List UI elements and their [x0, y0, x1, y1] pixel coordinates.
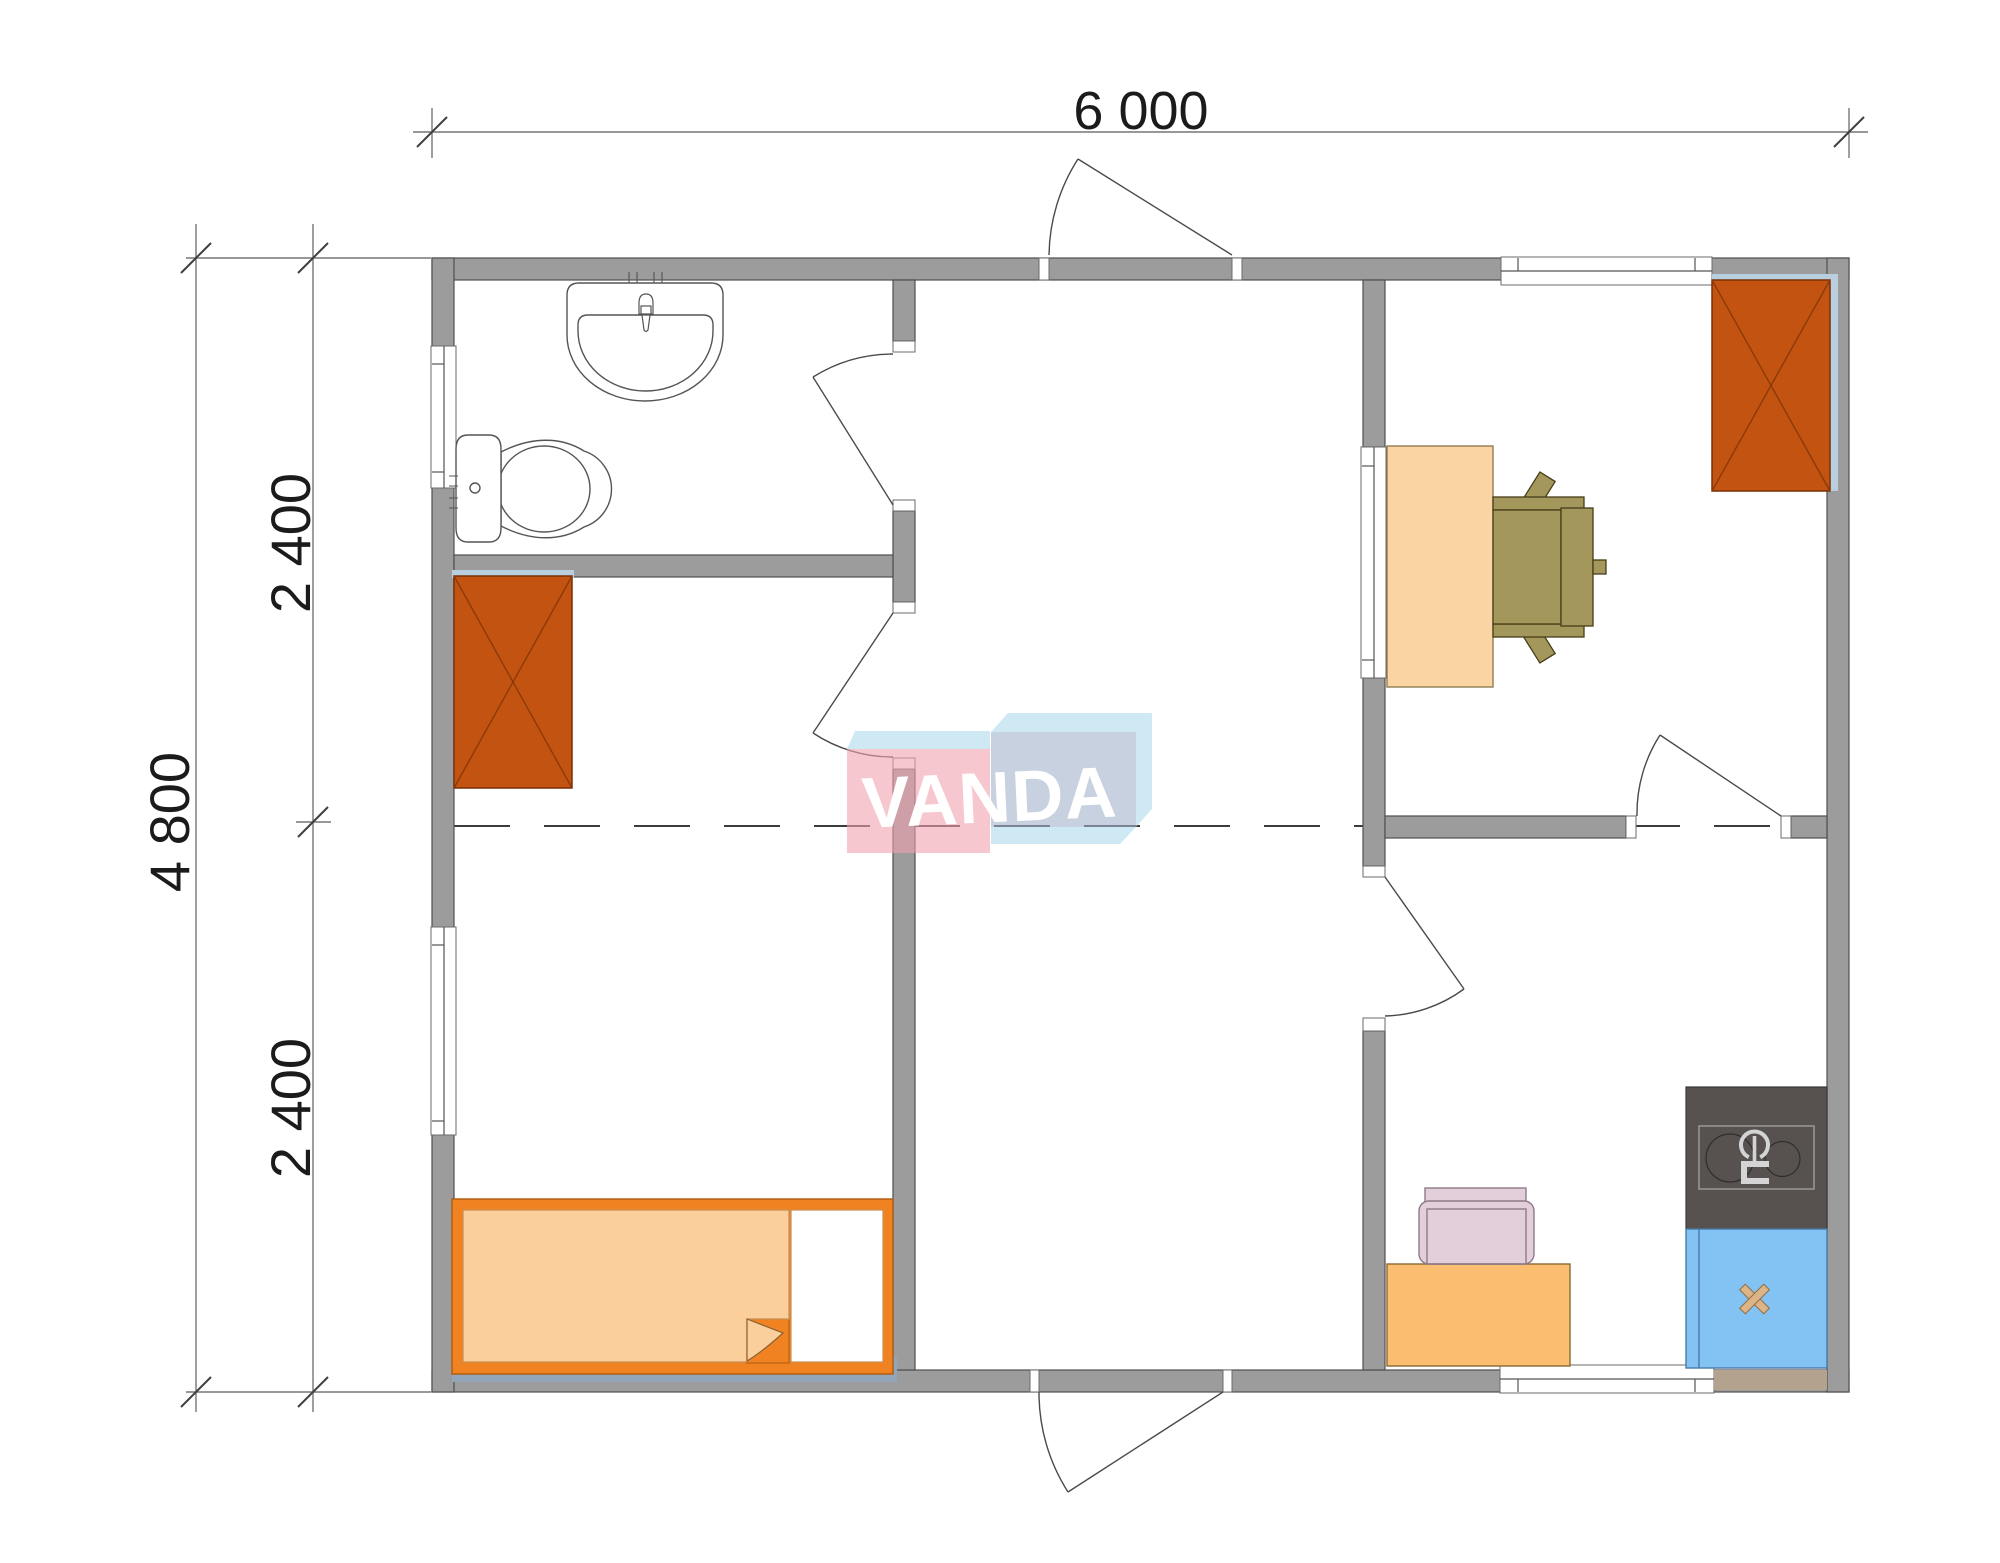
svg-text:4 800: 4 800: [138, 752, 201, 892]
svg-text:6 000: 6 000: [1073, 81, 1208, 141]
svg-text:2 400: 2 400: [259, 1038, 322, 1178]
svg-text:VANDA: VANDA: [860, 752, 1119, 844]
svg-text:2 400: 2 400: [259, 473, 322, 613]
